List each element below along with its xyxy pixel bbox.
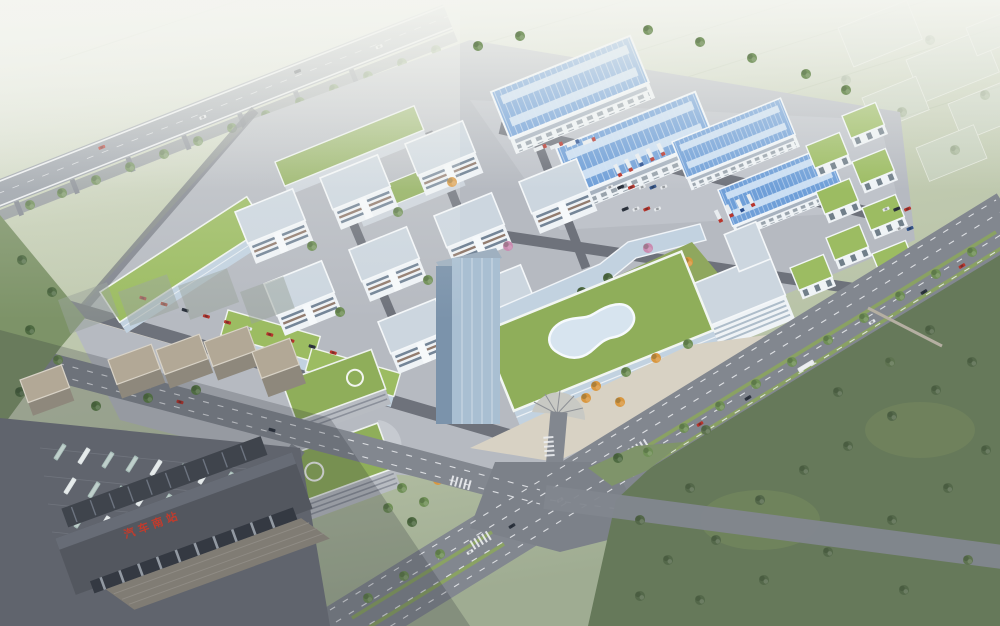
scene-canvas: 汽车南站 xyxy=(0,0,1000,626)
corner-haze xyxy=(0,0,460,320)
aerial-rendering-industrial-park: 汽车南站 xyxy=(0,0,1000,626)
bus-station-area: 汽车南站 xyxy=(0,418,330,626)
